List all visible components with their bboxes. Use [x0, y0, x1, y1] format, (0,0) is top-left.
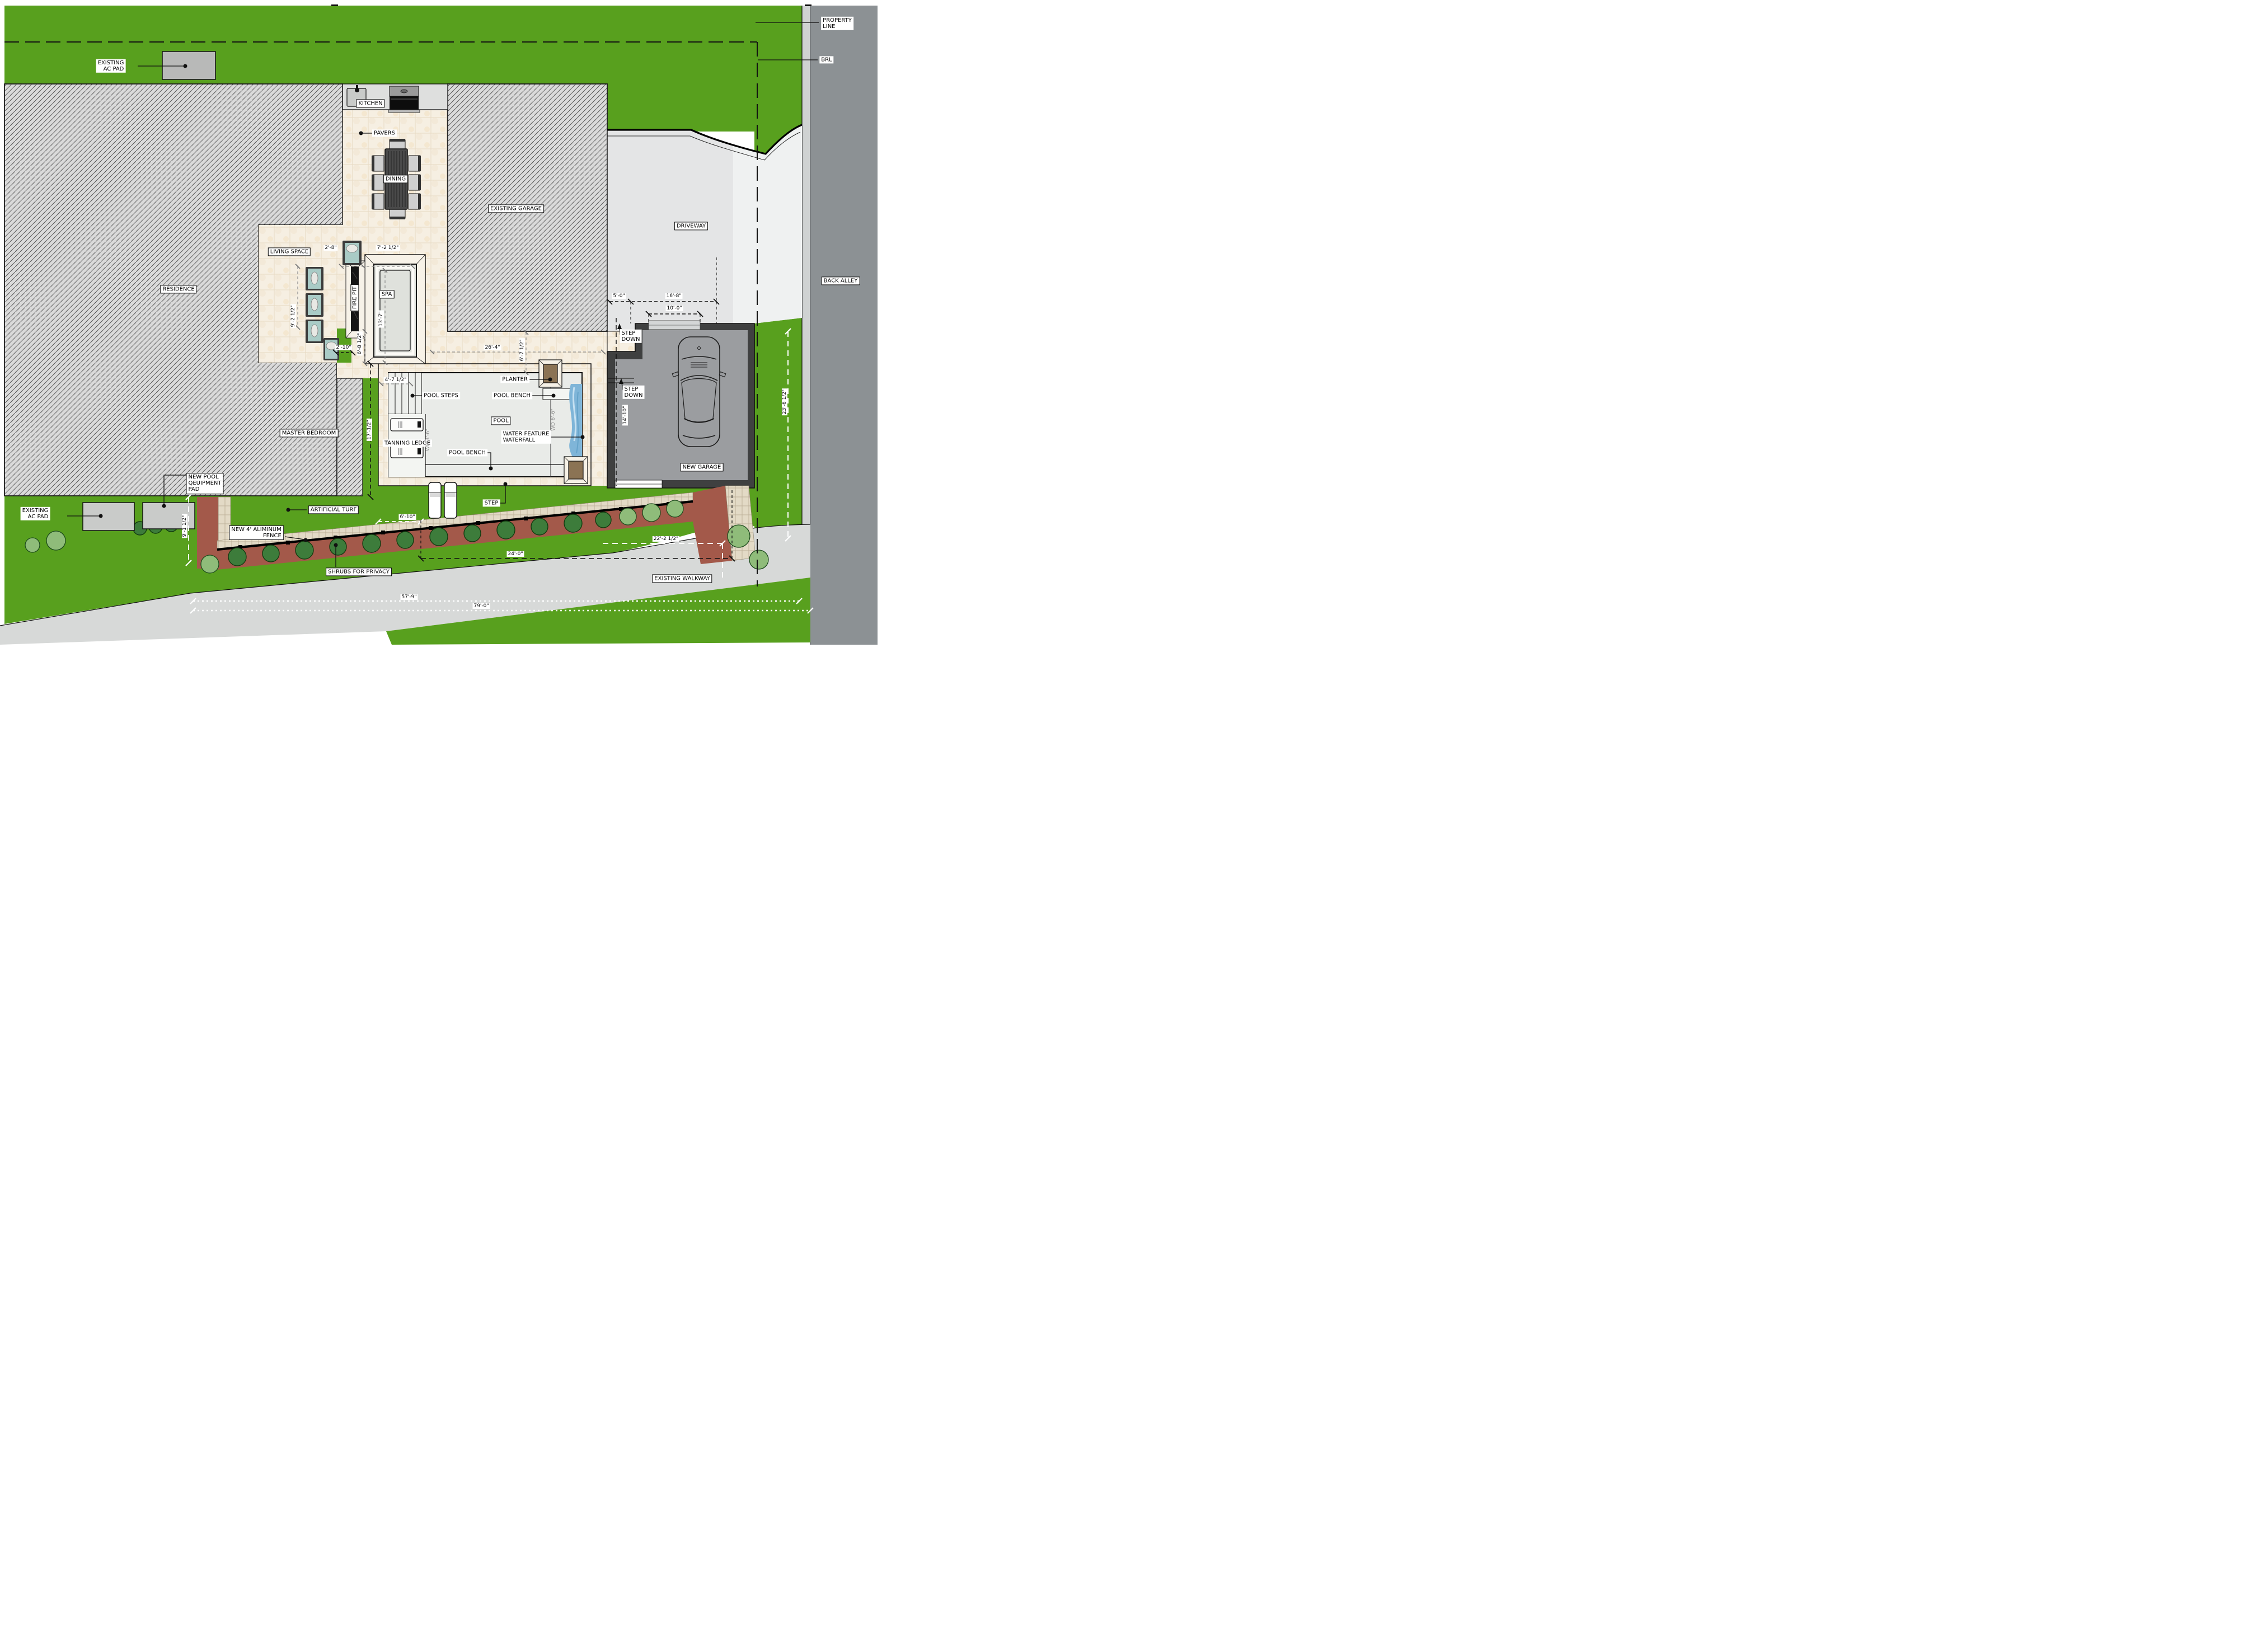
- label-step-down-1-l2: DOWN: [622, 336, 640, 342]
- label-new-pool-equipment-pad: NEW POOL QEUIPMENT PAD: [186, 473, 223, 494]
- back-alley: [802, 6, 878, 645]
- label-residence: RESIDENCE: [160, 285, 196, 293]
- dim-spa-width: 7'-2 1/2": [376, 245, 400, 251]
- label-existing-ac-pad-bottom-l1: EXISTING: [22, 508, 49, 514]
- dim-drive-side: 5'-0": [612, 293, 626, 299]
- label-pool-bench-right: POOL BENCH: [492, 392, 532, 399]
- label-pool: POOL: [491, 416, 510, 425]
- dim-deck-width: 26'-4": [484, 345, 501, 350]
- label-pool-steps: POOL STEPS: [422, 392, 460, 399]
- label-existing-ac-pad-top-l1: EXISTING: [98, 60, 124, 66]
- label-step-down-1-l1: STEP: [622, 330, 640, 336]
- label-water-feature: WATER FEATURE WATERFALL: [501, 430, 551, 444]
- dim-side-yard: 22'-2 1/2": [653, 536, 679, 542]
- planter-top: [539, 360, 562, 387]
- label-existing-walkway: EXISTING WALKWAY: [652, 574, 712, 583]
- label-step-down-1: STEP DOWN: [620, 330, 642, 343]
- dim-rear-setback: 23'-6 1/2": [782, 388, 787, 415]
- label-step: STEP: [483, 499, 500, 506]
- label-driveway: DRIVEWAY: [674, 222, 708, 230]
- dim-spa-terrace: 13'-7": [378, 310, 384, 327]
- dim-garage-inner: 14'-10": [622, 405, 628, 426]
- dim-depth-deep: WD 6'-6": [551, 407, 556, 432]
- label-property-line: PROPERTY LINE: [821, 17, 853, 30]
- dim-turf-length: 17'-1/2": [367, 419, 372, 441]
- label-living-space: LIVING SPACE: [268, 247, 311, 256]
- label-existing-garage: EXISTING GARAGE: [488, 204, 544, 213]
- label-equip-pad-l2: QEUIPMENT: [188, 480, 221, 486]
- label-step-down-2-l2: DOWN: [625, 392, 643, 398]
- label-brl: BRL: [819, 56, 833, 63]
- label-water-feature-l2: WATERFALL: [503, 437, 550, 443]
- label-step-down-2: STEP DOWN: [623, 386, 645, 399]
- spa: [365, 255, 425, 364]
- outdoor-kitchen: [343, 84, 448, 112]
- grill-icon: [388, 86, 420, 112]
- site-plan-canvas: PROPERTY LINE BRL EXISTING AC PAD KITCHE…: [0, 0, 878, 645]
- dim-living-depth: 9'-2 1/2": [290, 304, 296, 328]
- label-pavers: PAVERS: [372, 129, 397, 137]
- label-aluminum-fence: NEW 4' ALIMINUM FENCE: [229, 525, 284, 540]
- label-equip-pad-l1: NEW POOL: [188, 474, 221, 480]
- site-plan-drawing: [0, 0, 878, 645]
- label-water-feature-l1: WATER FEATURE: [503, 431, 550, 437]
- label-existing-ac-pad-top-l2: AC PAD: [98, 66, 124, 72]
- label-equip-pad-l3: PAD: [188, 487, 221, 493]
- label-aluminum-fence-l1: NEW 4' ALIMINUM: [231, 527, 282, 533]
- label-pool-bench-bottom: POOL BENCH: [447, 449, 487, 456]
- label-property-line-l1: PROPERTY: [823, 17, 852, 24]
- label-existing-ac-pad-top: EXISTING AC PAD: [96, 59, 126, 73]
- dim-door-width: 10'-0": [665, 306, 683, 311]
- dim-turf-width: 2'-10": [335, 345, 352, 350]
- label-step-down-2-l1: STEP: [625, 386, 643, 392]
- dim-chair-width: 2'-8": [323, 245, 337, 251]
- label-new-garage: NEW GARAGE: [681, 463, 724, 471]
- dim-equip-depth: 9'-1 1/2": [182, 514, 187, 538]
- label-existing-ac-pad-bottom-l2: AC PAD: [22, 514, 49, 520]
- dim-turf-gap: 6'-10": [398, 514, 416, 520]
- dim-walk-width: 6'-8 1/2": [357, 332, 363, 356]
- label-kitchen: KITCHEN: [356, 99, 384, 107]
- dim-walkway-len2: 79'-0": [472, 603, 490, 609]
- label-master-bedroom: MASTER BEDROOM: [280, 429, 339, 437]
- label-fire-pit: FIRE PIT: [350, 284, 359, 311]
- dim-drive-width: 16'-8": [665, 293, 682, 299]
- label-back-alley: BACK ALLEY: [822, 276, 860, 285]
- dim-steps-width: 4'-7 1/2": [384, 377, 408, 383]
- label-artificial-turf: ARTIFICIAL TURF: [308, 505, 359, 514]
- label-tanning-ledge: TANNING LEDGE: [383, 439, 432, 447]
- dim-walkway-len1: 57'-9": [400, 594, 417, 600]
- planter-bottom: [564, 457, 588, 484]
- label-planter: PLANTER: [500, 376, 529, 383]
- dim-yard-width: 24'-0": [506, 551, 524, 557]
- label-property-line-l2: LINE: [823, 24, 852, 30]
- label-shrubs: SHRUBS FOR PRIVACY: [326, 567, 392, 576]
- pool: [388, 360, 588, 484]
- dim-depth-shallow: WD 3'-6": [425, 428, 431, 452]
- label-spa: SPA: [379, 290, 395, 298]
- label-existing-ac-pad-bottom: EXISTING AC PAD: [21, 507, 50, 520]
- label-dining: DINING: [383, 175, 408, 183]
- label-aluminum-fence-l2: FENCE: [231, 533, 282, 539]
- dim-deck-depth: 6'-7 1/2": [519, 339, 525, 363]
